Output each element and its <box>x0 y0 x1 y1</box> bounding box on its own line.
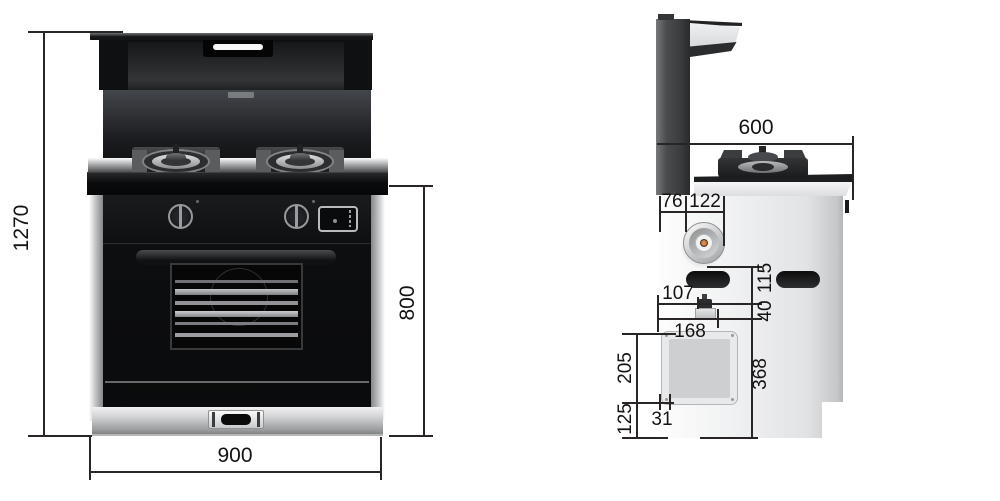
control-knob-left-marker <box>179 206 182 227</box>
door-bottom-trim-line <box>105 381 369 383</box>
control-knob-right-marker <box>295 206 298 227</box>
dim-168-tick-right <box>717 309 719 328</box>
dim-label-panel-bottom-offset: 125 <box>616 389 636 449</box>
dim-label-lower-section-height: 368 <box>751 344 771 404</box>
dim-600-line <box>657 143 853 145</box>
knob-left-indicator-dot <box>196 200 199 203</box>
oven-rack <box>175 289 298 295</box>
dim-800-ext-top <box>389 185 433 187</box>
gas-inlet-hub <box>700 239 708 247</box>
control-display <box>318 206 358 232</box>
kick-vent-bar <box>212 412 215 427</box>
hood-side-tower-tab <box>658 14 674 20</box>
dim-900-ext-right <box>380 437 382 480</box>
kick-vent-bar <box>257 412 260 427</box>
display-dot <box>333 219 337 223</box>
dim-label-width: 900 <box>205 445 265 467</box>
dim-800-ext-bottom <box>389 435 433 437</box>
dim-label-body-height: 800 <box>397 268 419 338</box>
access-panel-screw <box>731 398 734 401</box>
dim-label-panel-edge-gap: 31 <box>646 410 678 430</box>
dim-205-ext-top <box>622 333 676 335</box>
dim-label-valve-drop: 40 <box>756 281 776 341</box>
dim-600-ext-right <box>852 136 854 200</box>
access-panel-screw <box>665 398 668 401</box>
burner-side-ring-center <box>752 163 774 171</box>
oven-rack <box>175 322 298 325</box>
front-base-shadow <box>92 434 383 436</box>
burner-right-cap <box>290 153 310 161</box>
side-mount-clip <box>845 200 849 213</box>
side-trim-left <box>89 195 103 421</box>
dim-label-top-depth: 600 <box>726 117 786 139</box>
dim-31-tick-right <box>669 394 671 410</box>
dim-1270-ext-bottom <box>28 435 92 437</box>
oven-rack <box>175 311 298 317</box>
dim-115-top-line <box>707 266 762 268</box>
dim-label-overall-height: 1270 <box>11 193 33 263</box>
oven-rack <box>175 333 298 337</box>
dim-label-cutout-width: 168 <box>668 322 712 342</box>
dim-900-line <box>89 471 381 473</box>
kick-vent-slot <box>221 414 251 425</box>
cooktop <box>87 172 388 195</box>
oven-rack <box>175 301 298 305</box>
access-panel-screw <box>731 334 734 337</box>
display-segment-bar <box>349 210 351 227</box>
hood-side-tower <box>656 19 690 195</box>
dim-label-valve-offset: 107 <box>658 284 698 304</box>
vent-oval-right <box>776 271 820 288</box>
dim-800-line <box>423 185 425 435</box>
side-trim-right <box>371 195 385 421</box>
dim-40-bottom-line <box>657 318 762 320</box>
dim-368-bottom-line <box>700 437 758 439</box>
knob-right-indicator-dot <box>312 200 315 203</box>
burner-left-cap <box>166 153 186 161</box>
oven-rack <box>175 280 298 283</box>
installation-dimension-diagram: 1270 800 900 600 76 <box>0 0 1000 501</box>
hood-top-slab <box>90 33 373 40</box>
dim-label-inlet-left-offset: 76 <box>658 192 686 212</box>
oven-window-reflection <box>210 268 268 326</box>
access-panel-inner <box>669 339 730 398</box>
dim-31-tick-left <box>659 394 661 410</box>
dim-label-inlet-span: 122 <box>686 192 724 212</box>
control-panel-divider <box>103 243 371 244</box>
dim-205-125-vline <box>636 333 638 438</box>
dim-1270-line <box>43 31 45 435</box>
dim-900-ext-left <box>89 437 91 480</box>
hood-handle-slot <box>213 44 263 50</box>
brand-logo <box>228 92 254 98</box>
